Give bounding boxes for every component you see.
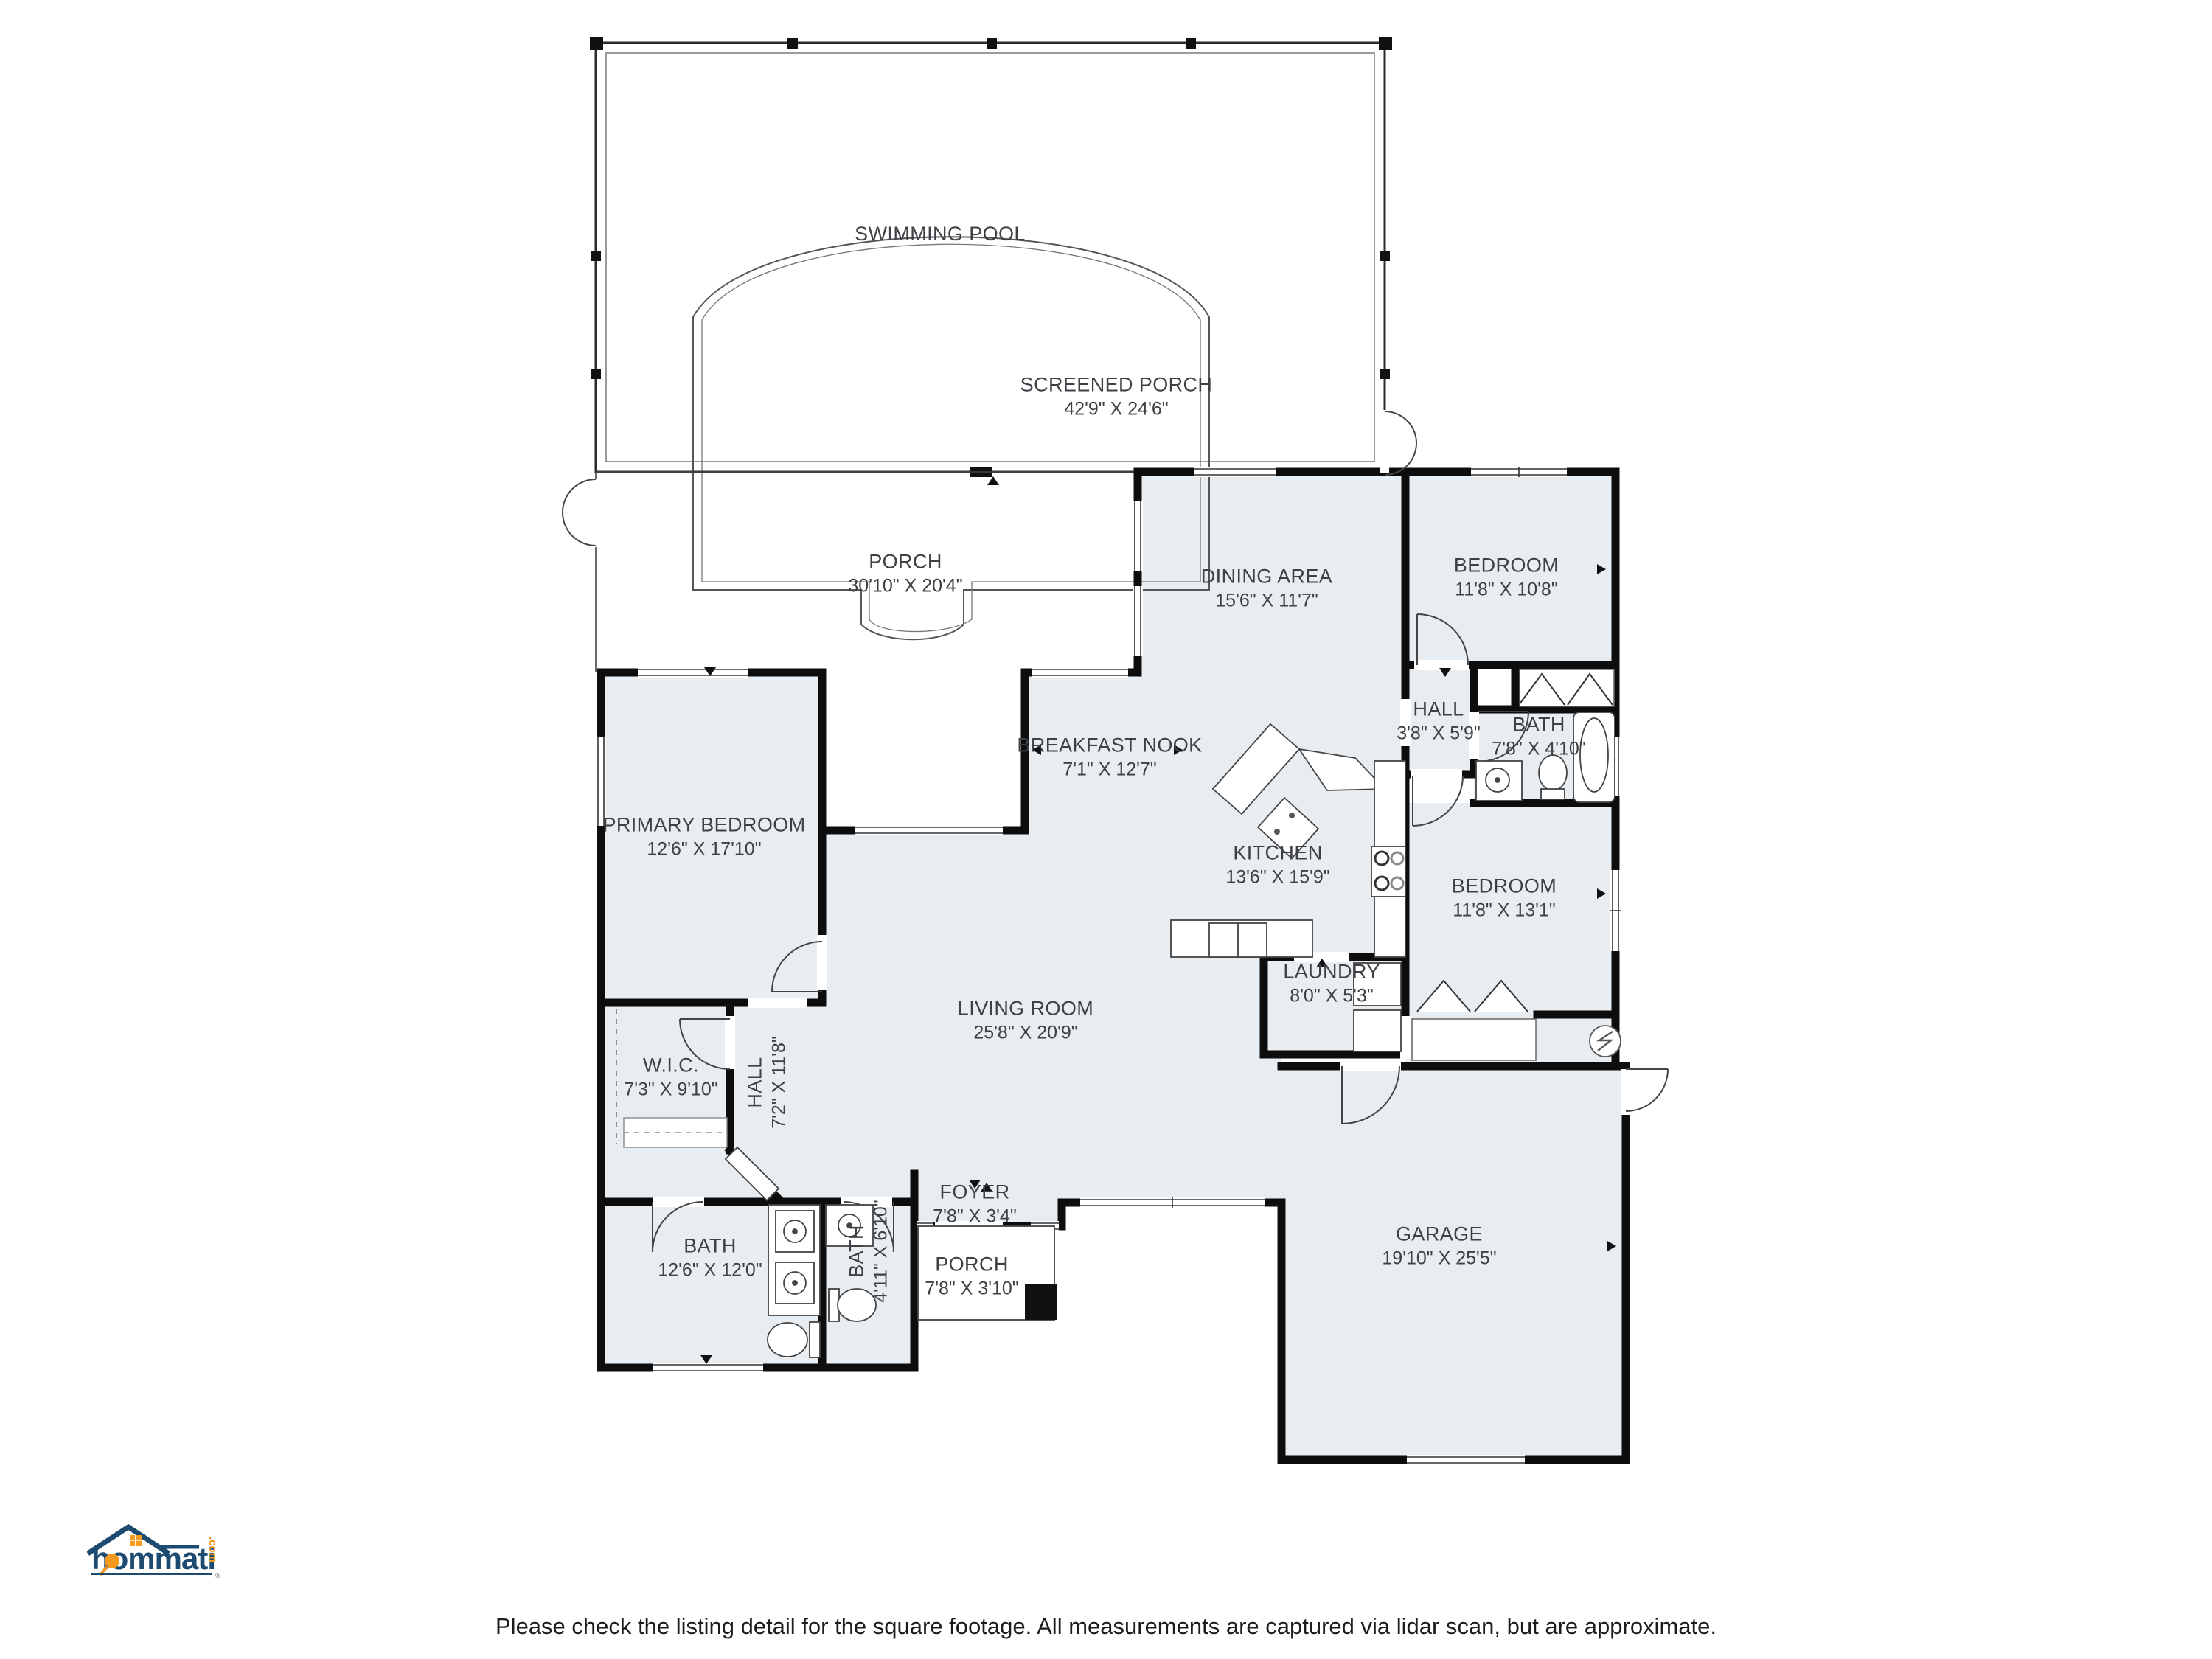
logo-registered: ® [215, 1572, 221, 1580]
floorplan-page: SWIMMING POOL SCREENED PORCH 42'9" X 24'… [0, 0, 2212, 1659]
toilet-s [838, 1289, 876, 1321]
hommati-logo-graphic: hommati .com ® [87, 1517, 242, 1581]
washer [1354, 963, 1401, 1006]
porch-pillar [1025, 1284, 1057, 1320]
logo-magnifier-lens [105, 1554, 119, 1568]
toilet-w [768, 1323, 807, 1357]
front-porch [918, 1226, 1057, 1320]
dryer [1354, 1010, 1401, 1051]
disclaimer-text: Please check the listing detail for the … [0, 1613, 2212, 1640]
toilet-w-tank [810, 1322, 820, 1357]
hommati-logo: hommati .com ® [87, 1517, 242, 1581]
logo-tld: .com [206, 1537, 219, 1562]
toilet-ne [1539, 755, 1567, 790]
floorplan-drawing [0, 0, 2212, 1659]
